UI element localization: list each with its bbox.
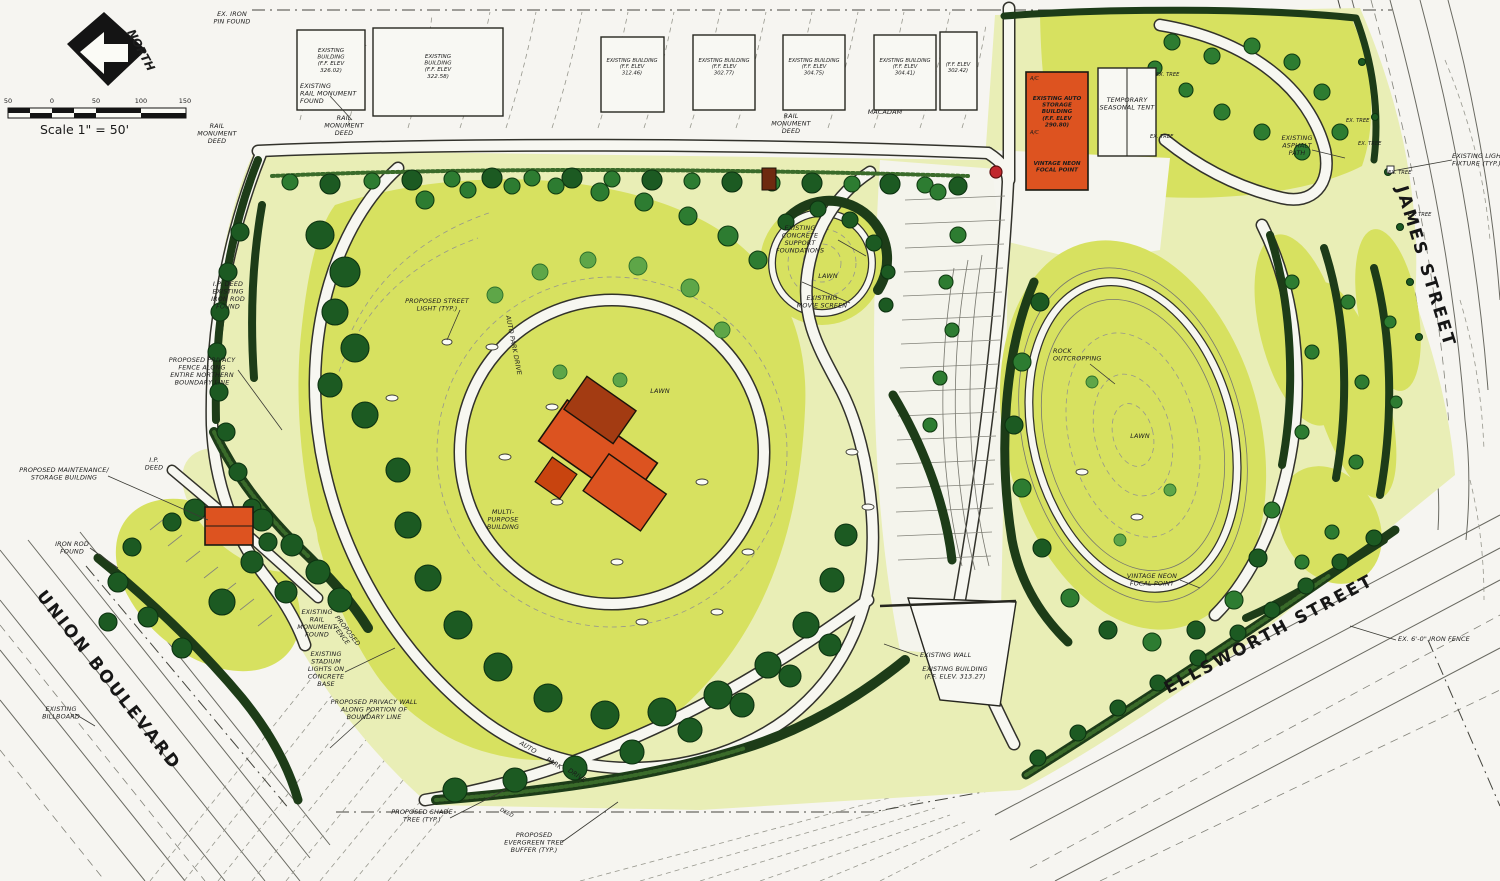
building-label-1: EXISTINGBUILDING(F.F. ELEV326.02) <box>317 48 345 74</box>
ann-ip-deed-iron-rod: I.P. DEEDEXISTINGIRON RODFOUND <box>211 280 245 311</box>
seasonal-tent-label: TEMPORARYSEASONAL TENT <box>1100 96 1156 112</box>
ac-label-1: A/C <box>1029 76 1039 82</box>
ann-light-fixture: EXISTING LIGHTFIXTURE (TYP.) <box>1452 152 1500 168</box>
site-plan-drawing: NORTH 50 0 50 100 150 Scale 1" = 50' UNI… <box>0 0 1500 881</box>
ann-ex-tree-3: EX. TREE <box>1388 170 1412 176</box>
ann-iron-fence: EX. 6'-0" IRON FENCE <box>1398 635 1471 643</box>
scale-tick-0: 50 <box>4 97 12 105</box>
building-label-2: EXISTINGBUILDING(F.F. ELEV322.58) <box>424 54 452 80</box>
ann-privacy-fence: PROPOSED PRIVACYFENCE ALONGENTIRE NORTHE… <box>169 356 236 387</box>
ann-ex-tree-1: EX. TREE <box>1346 118 1370 124</box>
ann-ex-tree-2: EX. TREE <box>1358 141 1382 147</box>
ann-ex-tree-4: EX. TREE <box>1408 212 1432 218</box>
ac-label-2: A/C <box>1029 130 1039 136</box>
scale-tick-3: 100 <box>135 97 147 105</box>
ann-iron-rod-found: IRON RODFOUND <box>55 540 89 556</box>
ann-ex-tree-5: EX. TREE <box>1156 72 1180 78</box>
scale-tick-2: 50 <box>92 97 100 105</box>
movie-screen-structure <box>762 168 776 190</box>
ann-ex-tree-6: EX. TREE <box>1150 134 1174 140</box>
neon-marker <box>990 166 1002 178</box>
ann-lawn-central: LAWN <box>650 387 670 395</box>
ann-macadam: MACADAM <box>868 108 903 116</box>
ann-lawn-movie: LAWN <box>818 272 838 280</box>
auto-storage-focal-point-label: VINTAGE NEONFOCAL POINT <box>1033 161 1080 174</box>
ann-billboard: EXISTINGBILLBOARD <box>42 705 80 721</box>
scale-tick-1: 0 <box>50 97 54 105</box>
maintenance-storage-building <box>205 507 253 545</box>
site-plan-page: NORTH 50 0 50 100 150 Scale 1" = 50' UNI… <box>0 0 1500 881</box>
existing-wall-label: EXISTING WALL <box>920 651 972 659</box>
scale-label: Scale 1" = 50' <box>40 122 129 137</box>
scale-tick-4: 150 <box>179 97 191 105</box>
ann-maintenance-storage: PROPOSED MAINTENANCE/STORAGE BUILDING <box>19 466 109 482</box>
wall-building-label: EXISTING BUILDING(F.F. ELEV. 313.27) <box>922 665 988 681</box>
ann-iron-pin-found: EX. IRONPIN FOUND <box>214 10 251 26</box>
building-label-7: (F.F. ELEV302.42) <box>946 62 971 74</box>
ann-vintage-neon-east: VINTAGE NEONFOCAL POINT <box>1127 572 1177 588</box>
ann-lawn-east: LAWN <box>1130 432 1150 440</box>
